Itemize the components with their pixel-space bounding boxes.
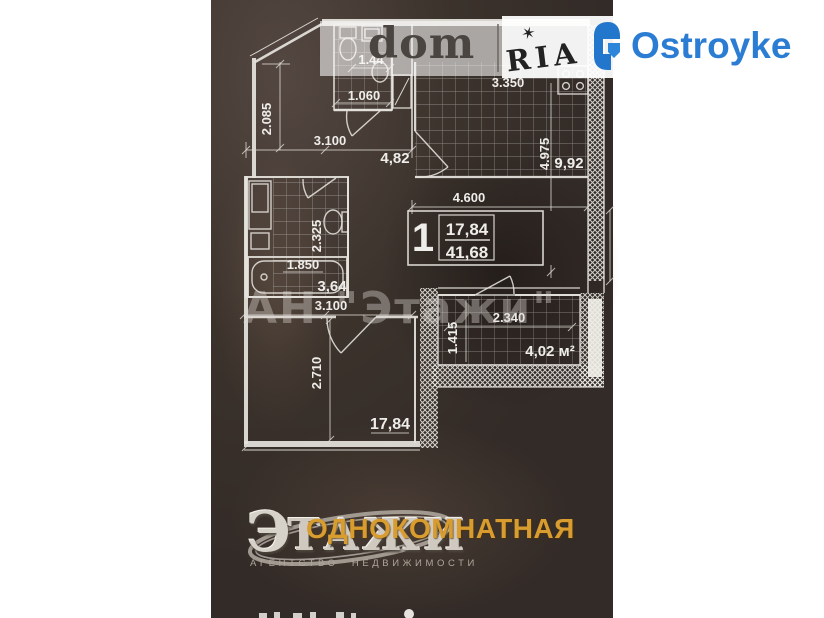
area-balcony: 4,02 м² xyxy=(525,343,574,360)
listing-photo-canvas: 1 17,84 41,68 1.44 1.060 2.085 3.100 4,8… xyxy=(0,0,824,618)
area-living: 17,84 xyxy=(370,416,410,433)
unit-living-area: 17,84 xyxy=(446,220,489,239)
agency-watermark: АН "Этажи" xyxy=(243,283,557,334)
dim-hall-height: 2.085 xyxy=(259,103,274,136)
domria-dom-text: dom xyxy=(368,23,475,66)
unit-number: 1 xyxy=(412,216,434,260)
dim-living-height: 2.710 xyxy=(309,357,324,390)
etazhi-wordmark-first: Э xyxy=(247,504,291,559)
area-kitchen: 9,92 xyxy=(554,155,583,172)
domria-separator xyxy=(497,24,499,72)
etazhi-subtitle: АГЕНТСТВО НЕДВИЖИМОСТИ xyxy=(250,558,478,569)
dim-wc-width2: 1.060 xyxy=(348,88,381,103)
ostroyke-logo: Ostroyke xyxy=(592,20,791,72)
dim-bath-height: 2.325 xyxy=(309,220,324,253)
dim-kitchen-width2: 4.600 xyxy=(453,190,486,205)
unit-total-area: 41,68 xyxy=(446,243,489,262)
dim-hall-width: 3.100 xyxy=(314,133,347,148)
dim-bath-width: 1.850 xyxy=(287,257,320,272)
area-hall: 4,82 xyxy=(380,150,409,167)
dim-kitchen-height: 4.975 xyxy=(537,138,552,171)
ostroyke-wordmark: Ostroyke xyxy=(631,25,791,67)
category-label: ОДНОКОМНАТНАЯ xyxy=(306,513,575,545)
ostroyke-icon xyxy=(592,20,622,72)
